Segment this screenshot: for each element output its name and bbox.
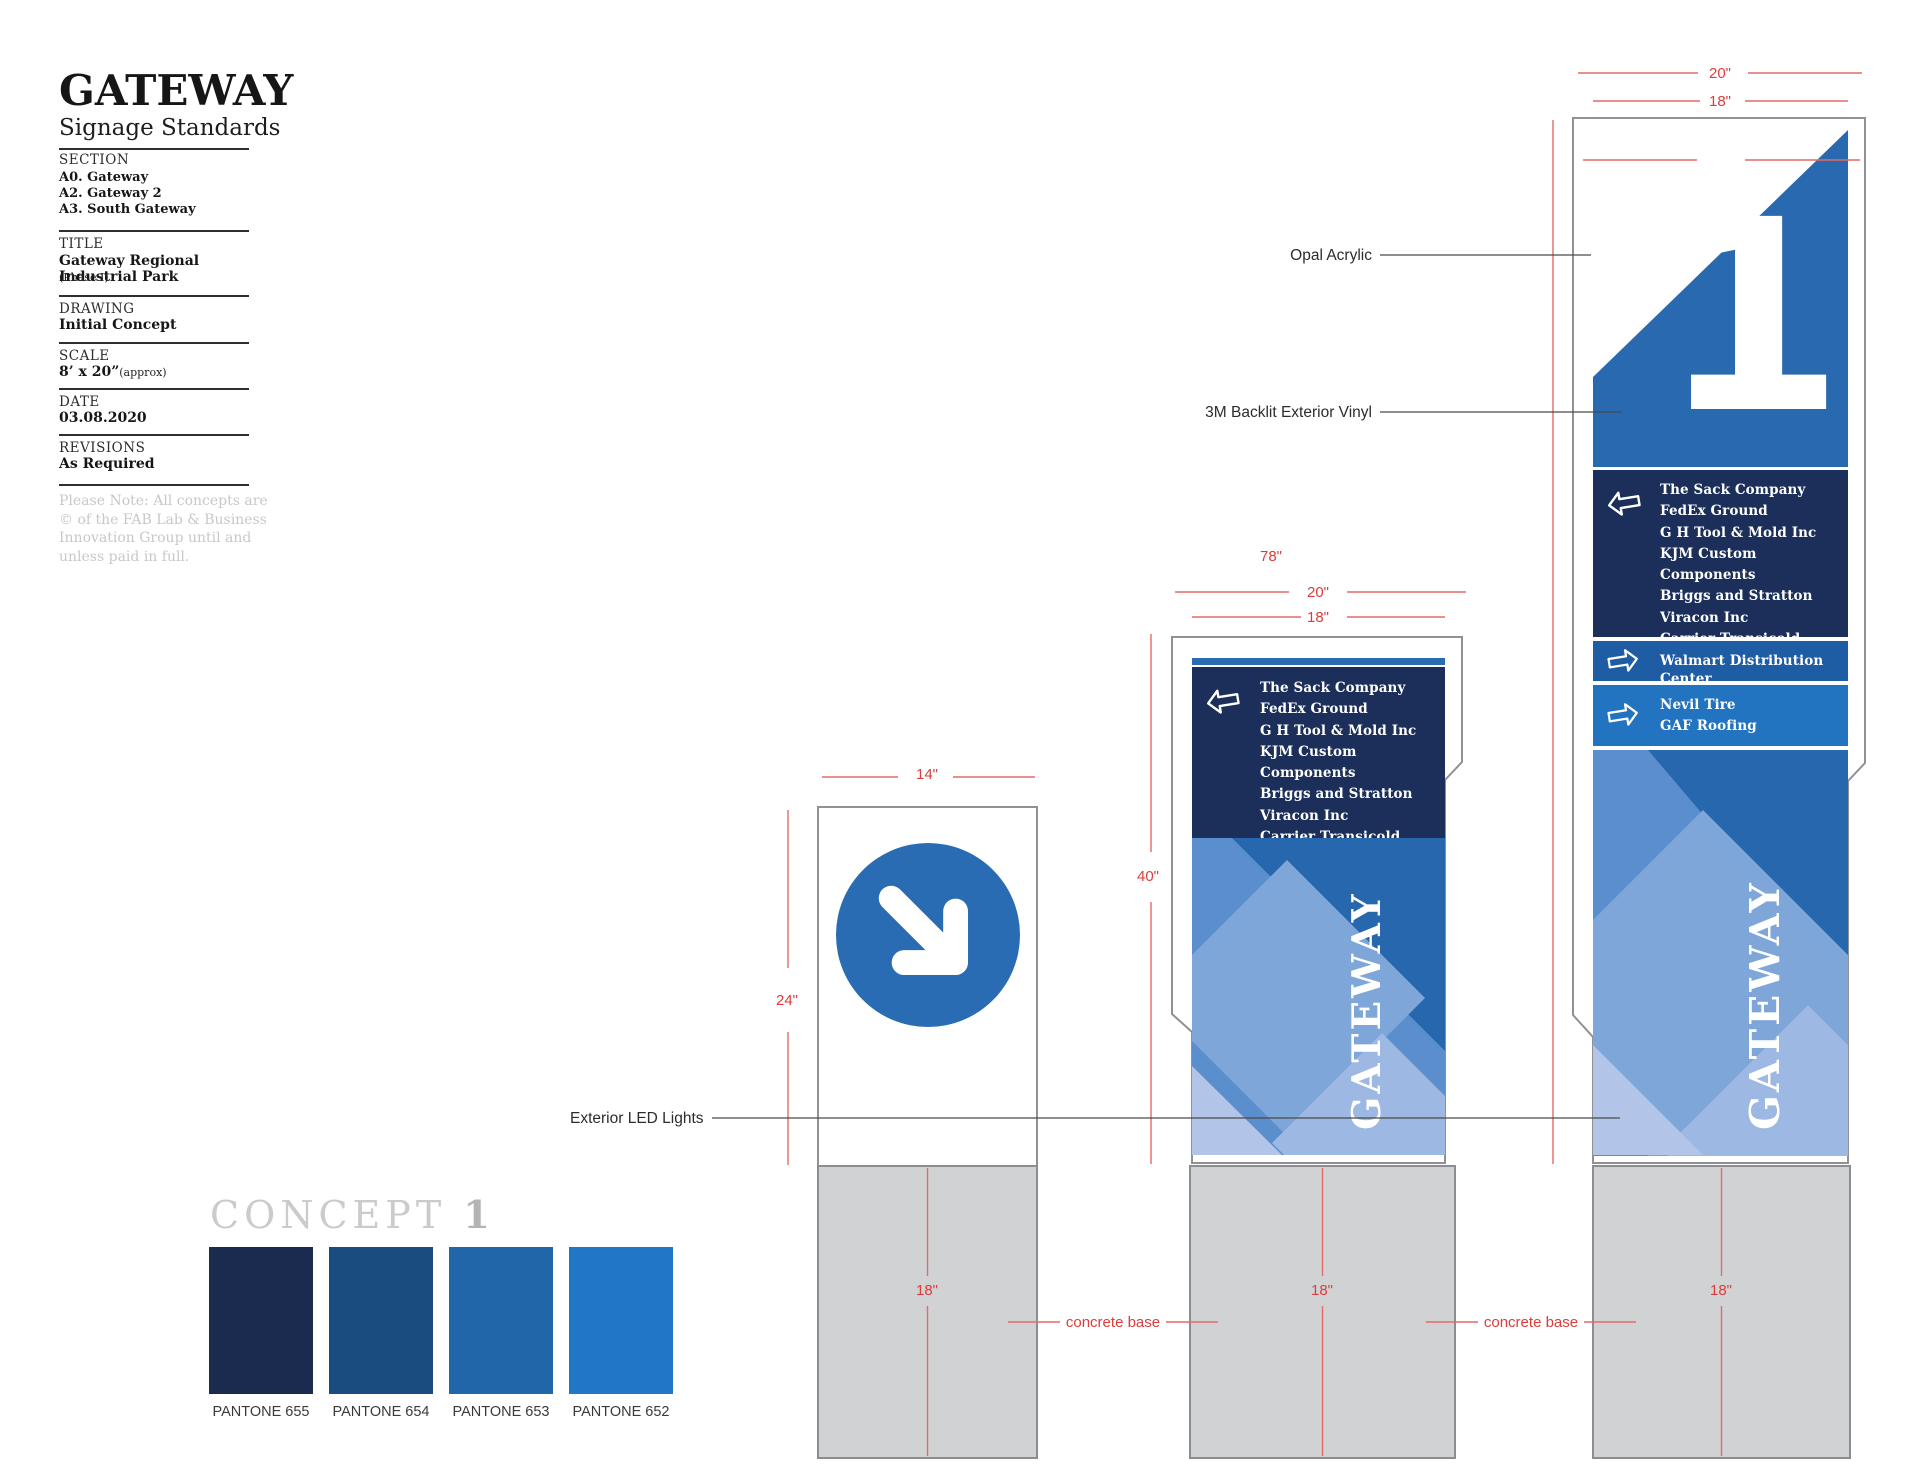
- title-label: TITLE: [59, 236, 104, 252]
- concrete-base-label: concrete base: [1476, 1314, 1586, 1331]
- concrete-base-label: concrete base: [1058, 1314, 1168, 1331]
- dim-40in: 40": [1123, 868, 1173, 885]
- opal-acrylic-label: Opal Acrylic: [1222, 247, 1372, 265]
- concrete-base-medium: [1190, 1166, 1455, 1458]
- divider: [59, 230, 249, 232]
- walmart-panel: Walmart Distribution Center: [1593, 641, 1848, 681]
- concrete-base-small: [818, 1166, 1037, 1458]
- gateway-wordmark-large: GATEWAY: [1741, 880, 1789, 1130]
- unit-numeral: 1: [1660, 186, 1838, 451]
- section-label: SECTION: [59, 152, 129, 168]
- dim-base-18in: 18": [902, 1282, 952, 1299]
- tenant-item: G H Tool & Mold Inc: [1260, 721, 1445, 742]
- divider: [59, 388, 249, 390]
- argyle-pattern-large: [1593, 750, 1848, 1156]
- exterior-led-label: Exterior LED Lights: [570, 1110, 710, 1128]
- sheet-subtitle: Signage Standards: [59, 117, 293, 140]
- note-line: unless paid in full.: [59, 548, 268, 567]
- tenant-item: The Sack Company: [1260, 678, 1445, 699]
- tenant-item: The Sack Company: [1660, 480, 1848, 501]
- dim-18in-large: 18": [1695, 93, 1745, 110]
- argyle-pattern-medium: [1192, 838, 1445, 1155]
- backlit-vinyl-label: 3M Backlit Exterior Vinyl: [1180, 404, 1372, 422]
- date-value: 03.08.2020: [59, 410, 147, 426]
- tenant-panel-medium: The Sack Company FedEx Ground G H Tool &…: [1192, 667, 1445, 838]
- dim-18in-medium: 18": [1293, 609, 1343, 626]
- title-note: (Phase I): [59, 271, 109, 284]
- logo-text: GATEWAY: [59, 70, 293, 112]
- direction-badge: [836, 843, 1020, 1027]
- swatch-label: PANTONE 652: [561, 1404, 681, 1420]
- copyright-note: Please Note: All concepts are © of the F…: [59, 492, 268, 566]
- swatch-label: PANTONE 653: [441, 1404, 561, 1420]
- dim-24in: 24": [762, 992, 812, 1009]
- gateway-wordmark-medium: GATEWAY: [1343, 891, 1391, 1130]
- drawing-label: DRAWING: [59, 301, 135, 317]
- scale-label: SCALE: [59, 348, 110, 364]
- arrow-right-icon: [1606, 701, 1640, 729]
- tenant-item: G H Tool & Mold Inc: [1660, 523, 1848, 544]
- tenant-item: Briggs and Stratton: [1660, 586, 1848, 607]
- divider: [59, 484, 249, 486]
- scale-value: 8’ x 20”: [59, 364, 119, 380]
- note-line: Please Note: All concepts are: [59, 492, 268, 511]
- divider: [59, 148, 249, 150]
- concept-heading-text: CONCEPT: [210, 1193, 463, 1237]
- scale-value-row: 8’ x 20”(approx): [59, 363, 167, 381]
- tenant-item: FedEx Ground: [1660, 501, 1848, 522]
- arrow-down-right-icon: [836, 843, 1020, 1027]
- dim-78in: 78": [1246, 548, 1296, 565]
- gaf-roofing-label: GAF Roofing: [1660, 716, 1848, 737]
- pantone-swatch-654: [329, 1247, 433, 1394]
- arrow-left-icon: [1205, 686, 1241, 716]
- concept-heading: CONCEPT 1: [210, 1192, 490, 1237]
- tenant-item: KJM Custom Components: [1260, 742, 1445, 785]
- tenant-item: Viracon Inc: [1260, 806, 1445, 827]
- note-line: Innovation Group until and: [59, 529, 268, 548]
- pantone-swatch-652: [569, 1247, 673, 1394]
- section-item: A3. South Gateway: [59, 202, 196, 218]
- section-item: A2. Gateway 2: [59, 186, 196, 202]
- signage-standards-sheet: GATEWAY Signage Standards SECTION A0. Ga…: [0, 0, 1920, 1484]
- tenant-item: Viracon Inc: [1660, 608, 1848, 629]
- section-list: A0. Gateway A2. Gateway 2 A3. South Gate…: [59, 170, 196, 217]
- tenant-item: KJM Custom Components: [1660, 544, 1848, 587]
- dim-20in-medium: 20": [1293, 584, 1343, 601]
- revisions-label: REVISIONS: [59, 440, 145, 456]
- concept-number: 1: [463, 1192, 489, 1237]
- dim-20in-large: 20": [1695, 65, 1745, 82]
- tenant-item: FedEx Ground: [1260, 699, 1445, 720]
- divider: [59, 295, 249, 297]
- pantone-swatch-655: [209, 1247, 313, 1394]
- nevil-gaf-panel: Nevil Tire GAF Roofing: [1593, 685, 1848, 746]
- dim-base-18in: 18": [1696, 1282, 1746, 1299]
- scale-note: (approx): [119, 366, 166, 379]
- arrow-right-icon: [1606, 647, 1640, 675]
- dim-14in: 14": [902, 766, 952, 783]
- sheet-logo: GATEWAY Signage Standards: [59, 70, 293, 140]
- tenant-item: Briggs and Stratton: [1260, 784, 1445, 805]
- date-label: DATE: [59, 394, 100, 410]
- dim-base-18in: 18": [1297, 1282, 1347, 1299]
- concrete-base-large: [1593, 1166, 1850, 1458]
- arrow-left-icon: [1606, 488, 1642, 518]
- section-item: A0. Gateway: [59, 170, 196, 186]
- swatch-label: PANTONE 654: [321, 1404, 441, 1420]
- note-line: © of the FAB Lab & Business: [59, 511, 268, 530]
- divider: [59, 342, 249, 344]
- swatch-label: PANTONE 655: [201, 1404, 321, 1420]
- drawing-value: Initial Concept: [59, 317, 176, 333]
- pantone-swatch-653: [449, 1247, 553, 1394]
- sign-top-strip: [1192, 658, 1445, 665]
- divider: [59, 434, 249, 436]
- revisions-value: As Required: [59, 456, 155, 472]
- nevil-tire-label: Nevil Tire: [1660, 695, 1848, 716]
- tenant-panel-large: The Sack Company FedEx Ground G H Tool &…: [1593, 470, 1848, 637]
